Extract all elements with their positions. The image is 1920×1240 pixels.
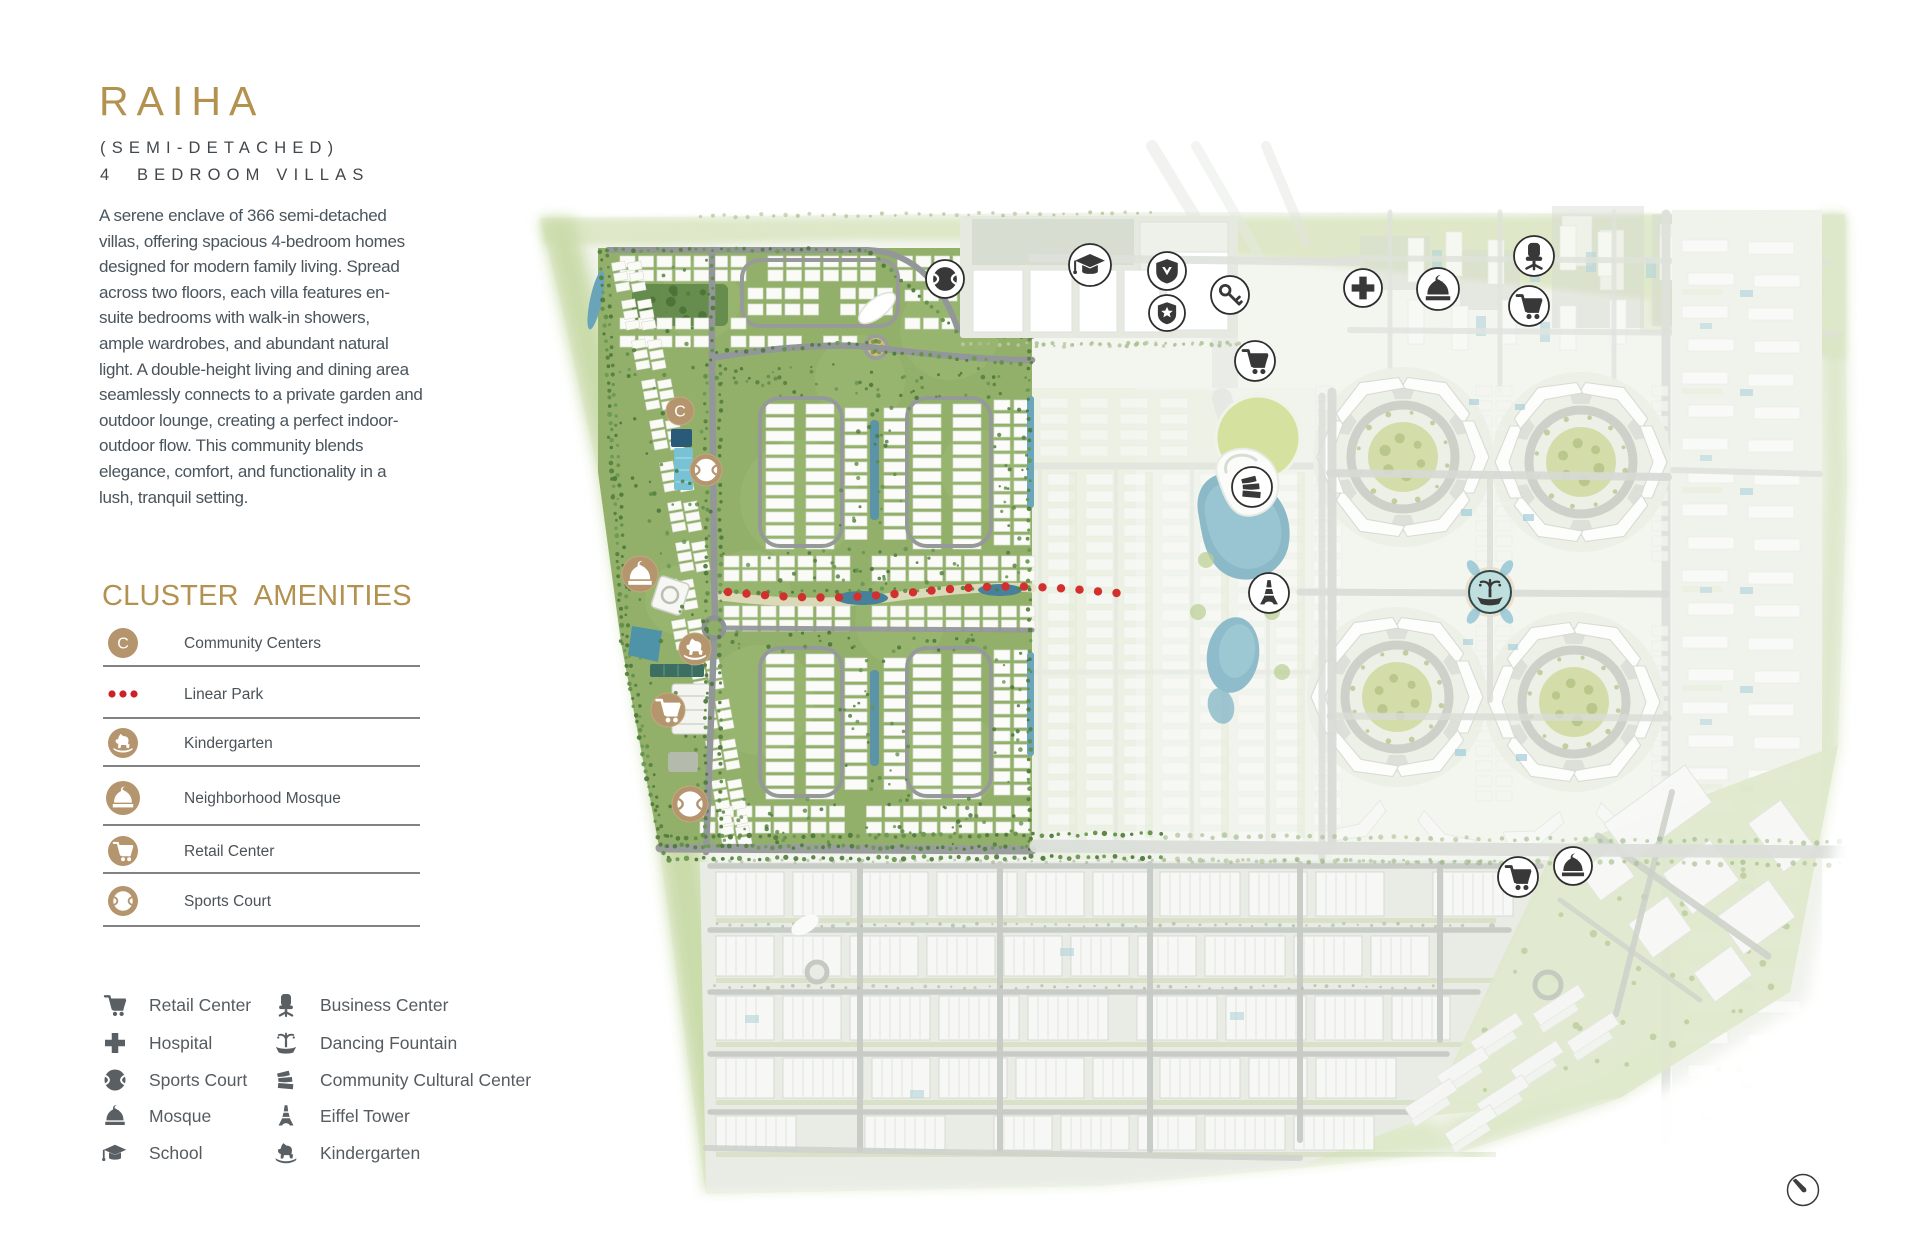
svg-text:C: C bbox=[674, 404, 686, 421]
svg-text:Community Cultural Center: Community Cultural Center bbox=[320, 1070, 531, 1090]
svg-text:Neighborhood Mosque: Neighborhood Mosque bbox=[184, 790, 341, 807]
svg-text:Sports Court: Sports Court bbox=[184, 893, 272, 910]
svg-text:Kindergarten: Kindergarten bbox=[184, 735, 273, 752]
svg-text:Eiffel Tower: Eiffel Tower bbox=[320, 1106, 410, 1126]
svg-text:Sports Court: Sports Court bbox=[149, 1070, 247, 1090]
svg-text:Retail Center: Retail Center bbox=[184, 843, 274, 860]
svg-text:Community Centers: Community Centers bbox=[184, 635, 321, 652]
svg-text:School: School bbox=[149, 1143, 203, 1163]
svg-text:Dancing Fountain: Dancing Fountain bbox=[320, 1033, 457, 1053]
svg-text:Mosque: Mosque bbox=[149, 1106, 211, 1126]
svg-text:Kindergarten: Kindergarten bbox=[320, 1143, 420, 1163]
svg-text:Business Center: Business Center bbox=[320, 995, 449, 1015]
svg-text:Linear Park: Linear Park bbox=[184, 686, 264, 703]
svg-text:Retail Center: Retail Center bbox=[149, 995, 251, 1015]
svg-text:C: C bbox=[117, 636, 129, 653]
svg-text:Hospital: Hospital bbox=[149, 1033, 212, 1053]
